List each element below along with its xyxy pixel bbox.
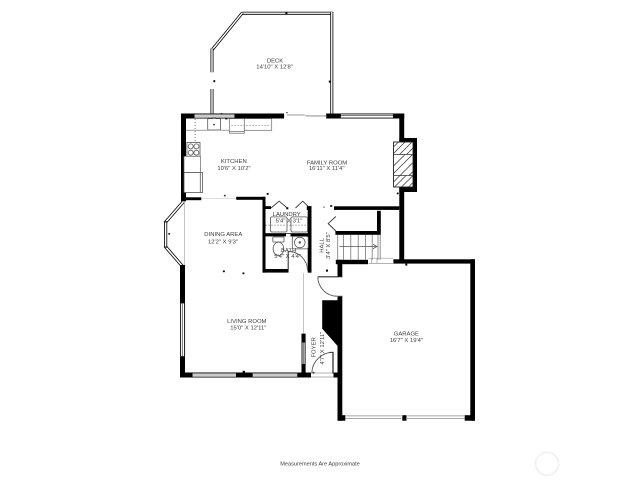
svg-text:4'7" X 12'11": 4'7" X 12'11" [320,332,326,365]
svg-text:3'4" X 8'5": 3'4" X 8'5" [326,232,332,259]
svg-text:HALL: HALL [320,237,326,252]
svg-text:12'2" X 9'3": 12'2" X 9'3" [208,239,238,245]
svg-text:15'0" X 12'11": 15'0" X 12'11" [230,325,266,331]
svg-text:10'6" X 10'2": 10'6" X 10'2" [217,166,250,172]
svg-text:16'11" X 11'4": 16'11" X 11'4" [309,166,345,172]
svg-text:14'10" X 12'8": 14'10" X 12'8" [256,65,293,71]
svg-text:5'4" X 3'1": 5'4" X 3'1" [276,219,303,225]
svg-text:KITCHEN: KITCHEN [221,159,247,165]
svg-text:FOYER: FOYER [312,337,318,357]
svg-text:Measurements Are Approximate: Measurements Are Approximate [280,462,360,468]
svg-text:DINING AREA: DINING AREA [204,232,242,238]
svg-text:5'4" X 4'4": 5'4" X 4'4" [274,254,301,260]
svg-text:GARAGE: GARAGE [394,331,419,337]
svg-text:LIVING ROOM: LIVING ROOM [227,319,266,325]
svg-text:16'7" X 19'4": 16'7" X 19'4" [390,338,423,344]
svg-text:LAUNDRY: LAUNDRY [273,212,301,218]
